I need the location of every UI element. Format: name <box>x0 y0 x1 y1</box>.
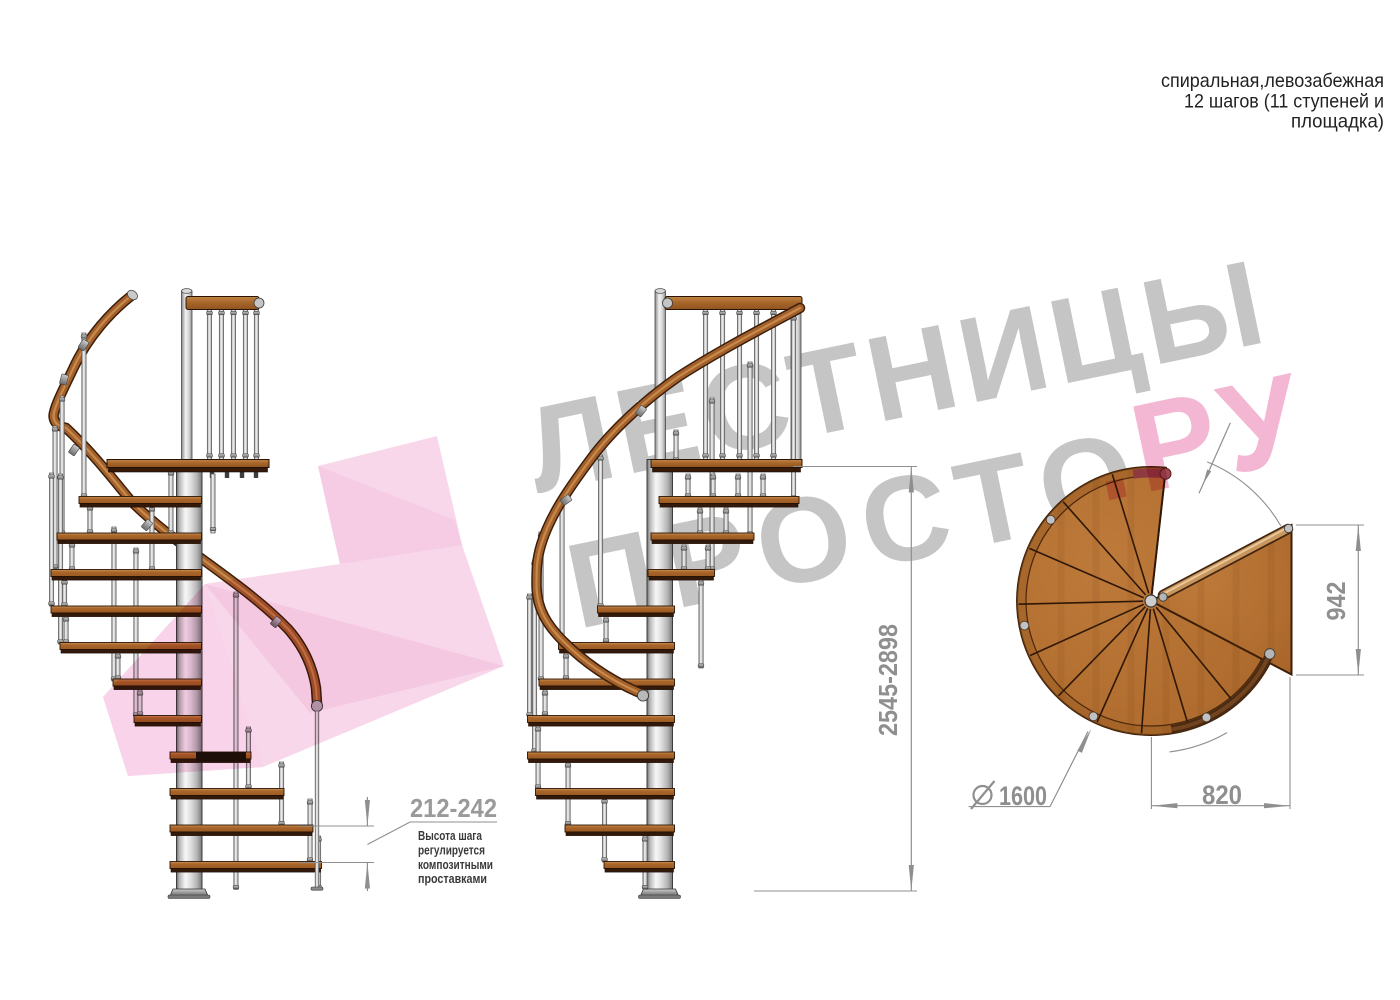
svg-text:спиральная,левозабежная: спиральная,левозабежная <box>1161 70 1384 92</box>
svg-text:2545-2898: 2545-2898 <box>873 624 903 736</box>
svg-text:820: 820 <box>1202 780 1242 810</box>
svg-text:Высота шага: Высота шага <box>418 829 483 843</box>
svg-text:площадка): площадка) <box>1291 111 1384 133</box>
svg-text:212-242: 212-242 <box>410 793 497 823</box>
svg-text:942: 942 <box>1321 582 1351 621</box>
svg-text:проставками: проставками <box>418 872 487 886</box>
svg-text:12 шагов (11 ступеней и: 12 шагов (11 ступеней и <box>1184 90 1384 112</box>
svg-text:композитными: композитными <box>418 858 493 872</box>
svg-text:регулируется: регулируется <box>418 843 485 857</box>
